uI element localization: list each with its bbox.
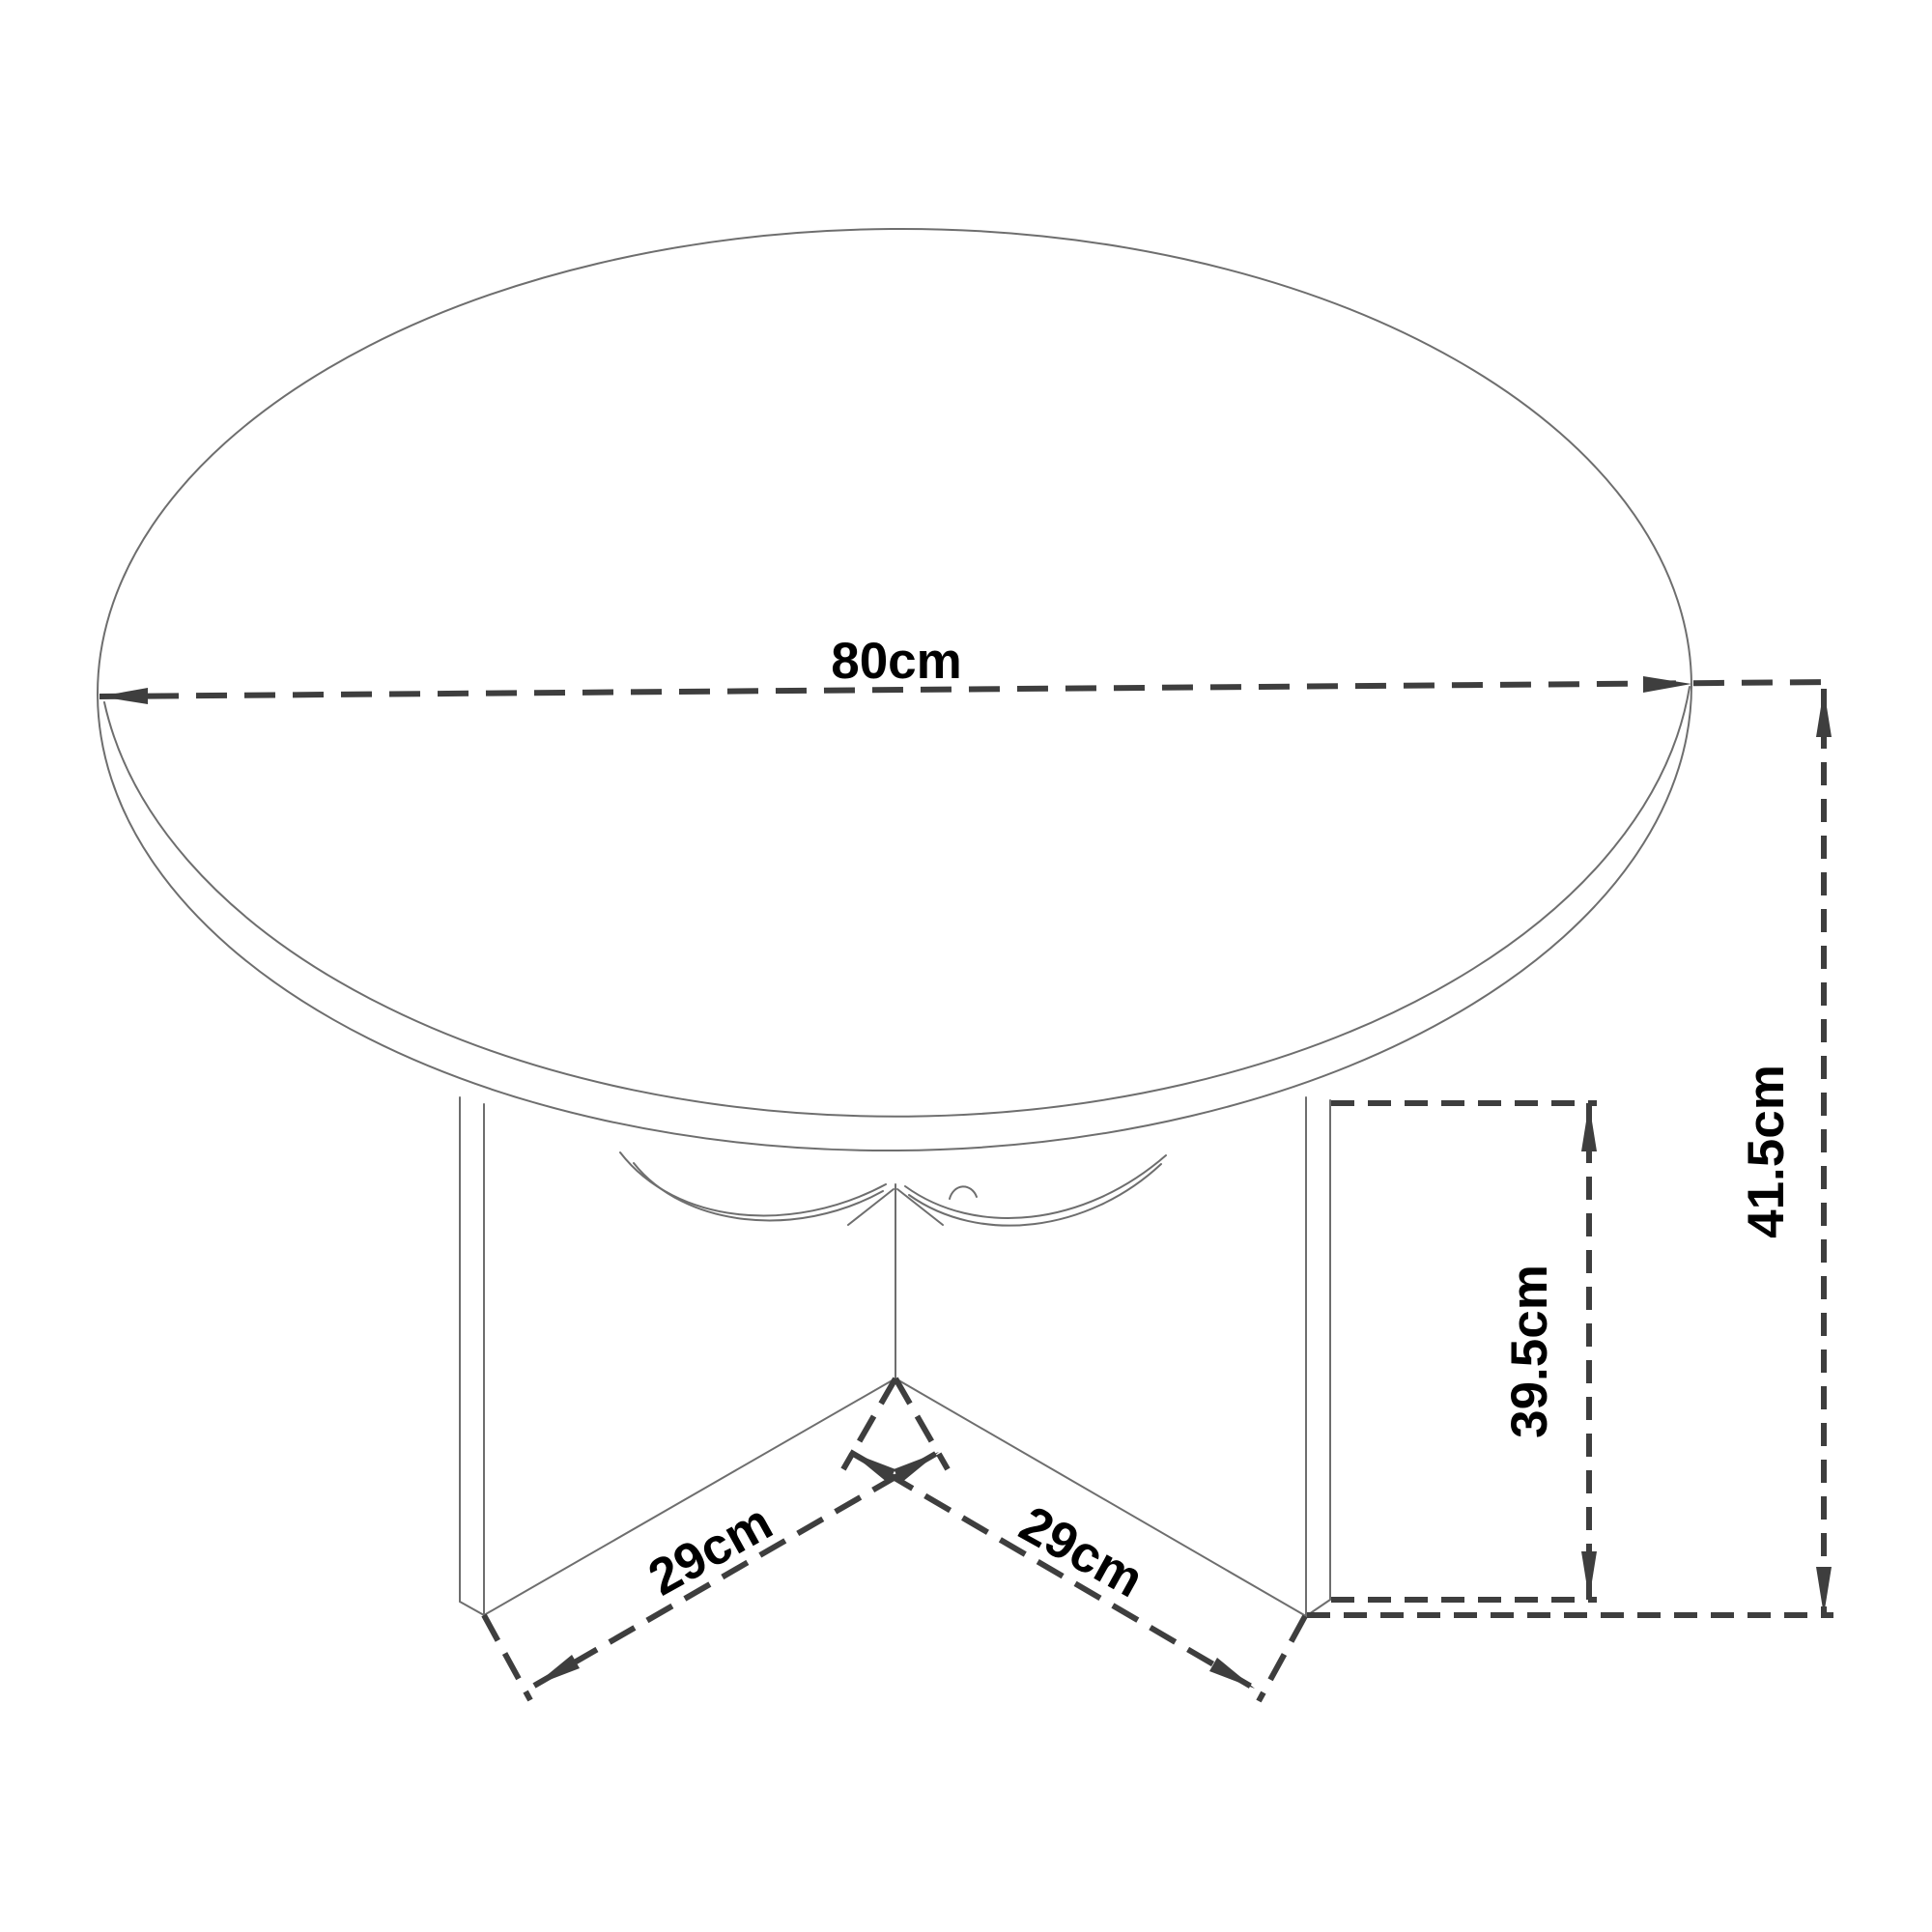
- dim-total-height-arrow-top: [1816, 689, 1832, 737]
- dimension-labels: 80cm 41.5cm 39.5cm 29cm 29cm: [639, 633, 1795, 1608]
- ext-line-vertex-right: [895, 1378, 948, 1469]
- total-height-label: 41.5cm: [1738, 1065, 1795, 1238]
- dim-diameter-arrow-left: [99, 688, 148, 704]
- back-leg-edge-right: [897, 1189, 943, 1225]
- left-leg-top-arc-outer: [620, 1152, 886, 1215]
- dim-leg-right-line: [850, 1452, 1255, 1689]
- leg-left-label: 29cm: [639, 1493, 781, 1606]
- technical-drawing-page: 80cm 41.5cm 39.5cm 29cm 29cm: [0, 0, 1932, 1932]
- dim-leg-left-line: [534, 1452, 939, 1686]
- dim-leg-height-arrow-bottom: [1581, 1551, 1597, 1600]
- leg-height-label: 39.5cm: [1501, 1264, 1558, 1438]
- diameter-label: 80cm: [831, 633, 962, 690]
- left-leg-foot-edge: [460, 1602, 484, 1615]
- table-geometry: [95, 223, 1695, 1616]
- dim-diameter-line: [99, 682, 1833, 696]
- dim-leg-right-arrow-inner: [850, 1452, 895, 1483]
- table-dimension-diagram: 80cm 41.5cm 39.5cm 29cm 29cm: [0, 0, 1932, 1932]
- tabletop-rim-edge: [104, 687, 1690, 1117]
- left-leg-top-arc-inner: [634, 1163, 883, 1220]
- right-leg-top-arc-outer: [905, 1155, 1166, 1218]
- back-leg-edge-left: [848, 1189, 894, 1225]
- center-junction-hump-arc: [950, 1186, 977, 1199]
- dim-leg-left-arrow-outer: [534, 1655, 580, 1686]
- leg-right-label: 29cm: [1010, 1495, 1152, 1608]
- ext-line-right-foot: [1259, 1616, 1305, 1701]
- ext-line-vertex-left: [843, 1378, 895, 1469]
- dimension-lines: [99, 676, 1833, 1701]
- dim-leg-height-arrow-top: [1581, 1103, 1597, 1151]
- dim-total-height-arrow-bottom: [1816, 1567, 1832, 1615]
- ext-line-left-foot: [484, 1615, 530, 1700]
- dim-leg-right-arrow-outer: [1209, 1658, 1255, 1689]
- dim-diameter-arrow-right: [1643, 676, 1691, 693]
